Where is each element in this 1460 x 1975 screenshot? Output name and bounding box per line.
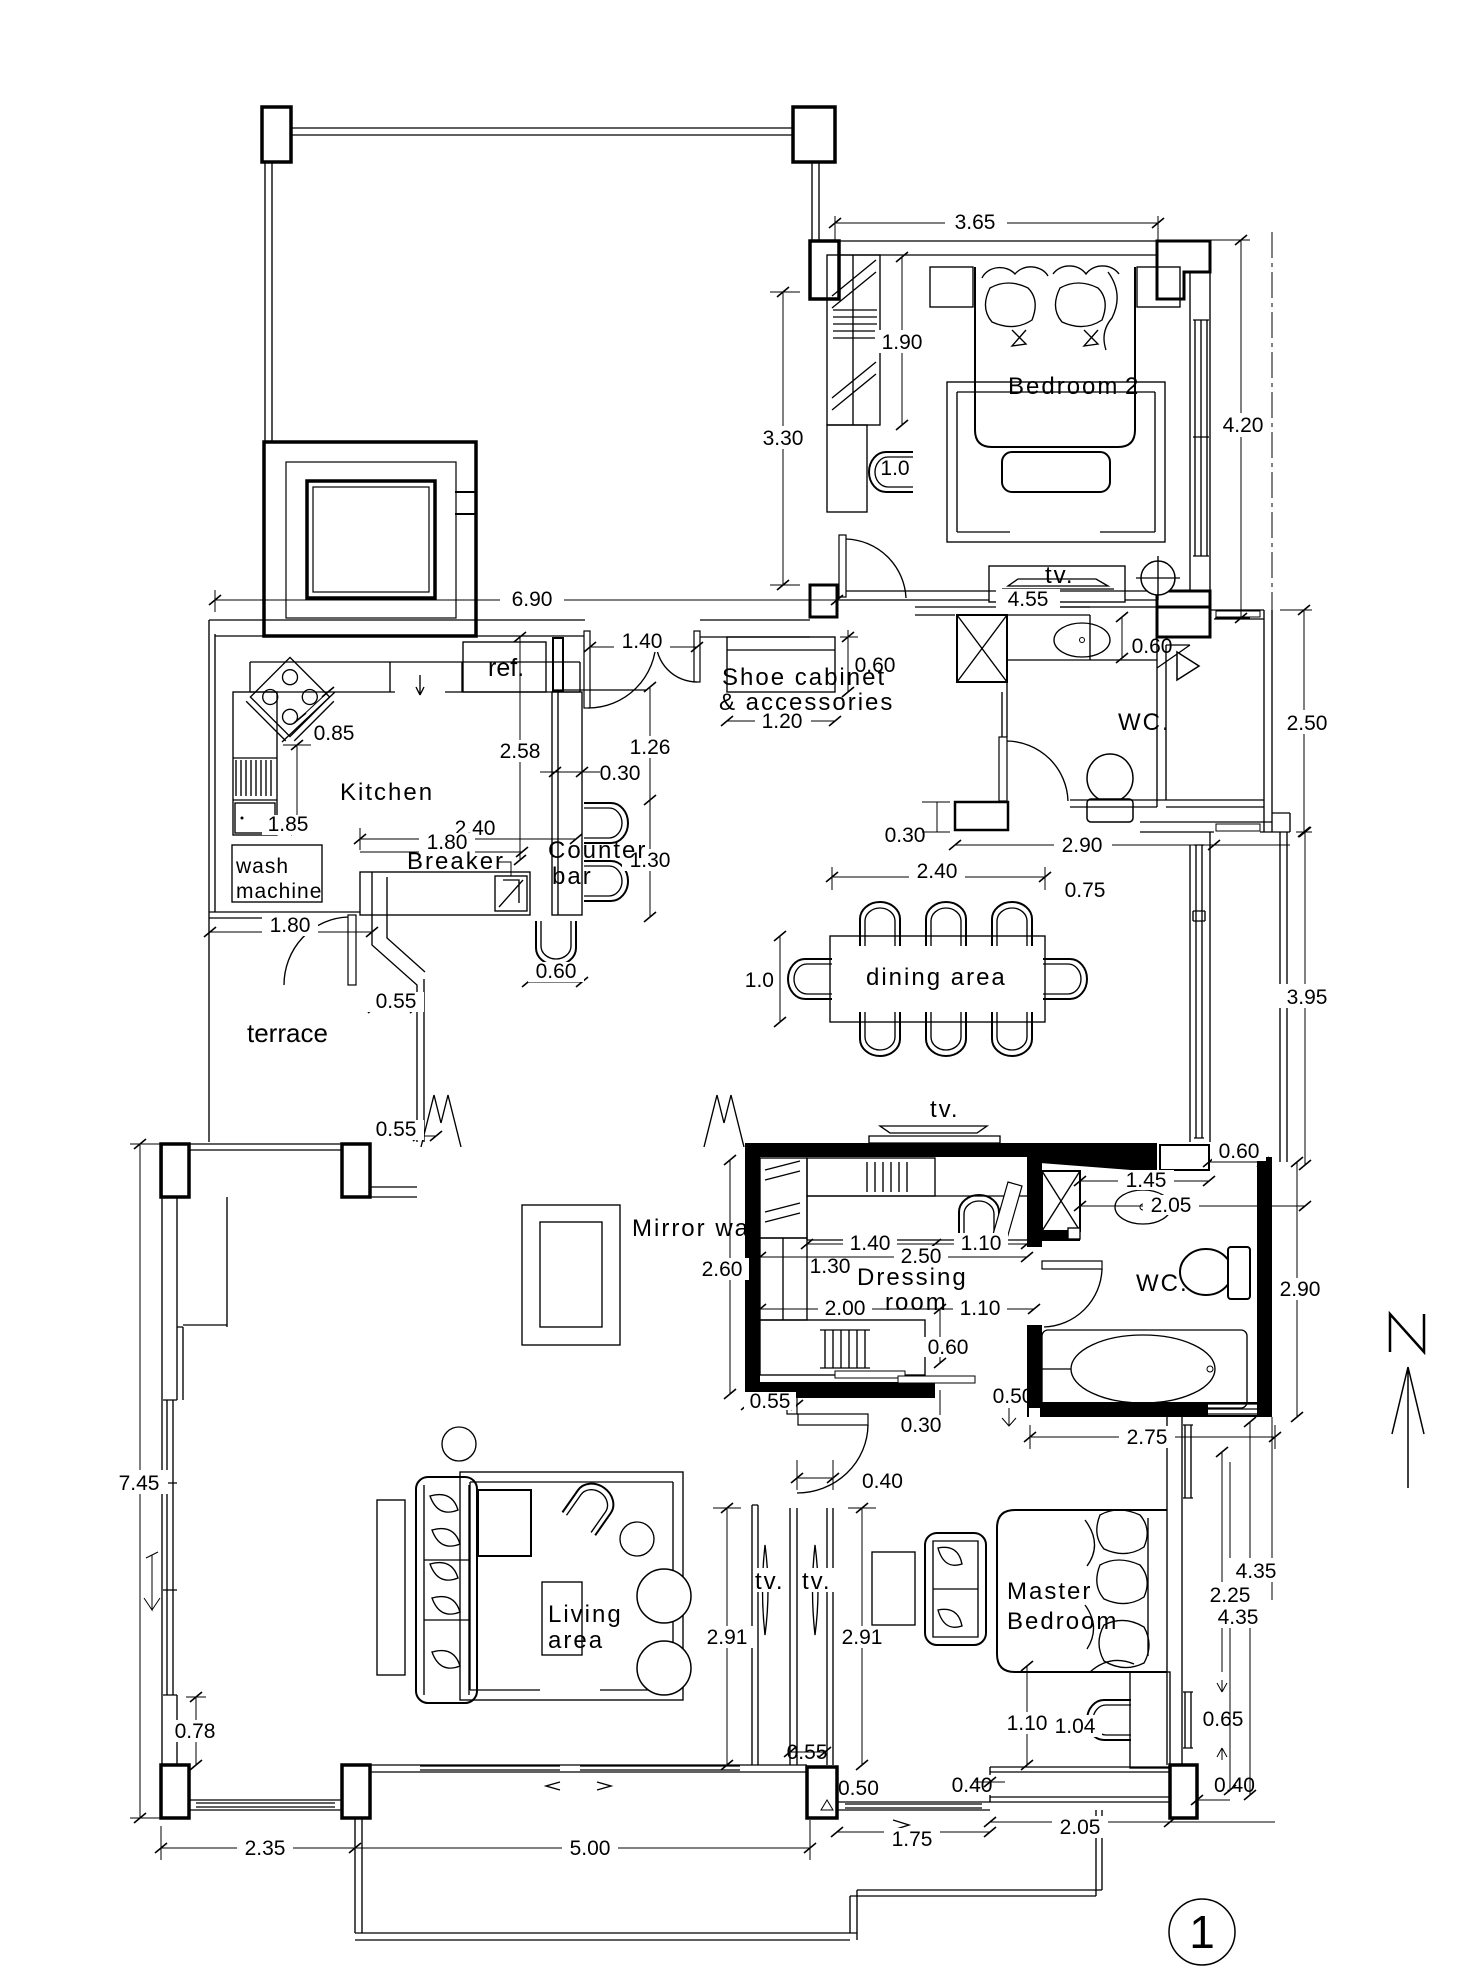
svg-text:0.55: 0.55 — [376, 990, 417, 1013]
svg-text:0.50: 0.50 — [838, 1777, 879, 1800]
svg-text:dining area: dining area — [866, 964, 1007, 991]
svg-text:1.04: 1.04 — [1055, 1715, 1096, 1738]
svg-text:1.75: 1.75 — [892, 1828, 933, 1851]
svg-text:2.91: 2.91 — [842, 1626, 883, 1649]
svg-text:0.55: 0.55 — [750, 1390, 791, 1413]
svg-text:3.65: 3.65 — [955, 211, 996, 234]
svg-text:1.0: 1.0 — [745, 969, 774, 992]
svg-text:2.40: 2.40 — [917, 860, 958, 883]
svg-text:Breaker: Breaker — [407, 848, 505, 875]
svg-text:WC.: WC. — [1136, 1270, 1189, 1297]
svg-text:Shoe cabinet: Shoe cabinet — [722, 664, 886, 691]
svg-text:1.40: 1.40 — [850, 1232, 891, 1255]
svg-text:1.90: 1.90 — [882, 331, 923, 354]
svg-text:Bedroom: Bedroom — [1007, 1608, 1118, 1635]
svg-text:2.90: 2.90 — [1062, 834, 1103, 857]
svg-text:tv.: tv. — [930, 1096, 960, 1123]
svg-text:WC.: WC. — [1118, 709, 1171, 736]
svg-text:Living: Living — [548, 1601, 623, 1628]
svg-text:0.60: 0.60 — [928, 1336, 969, 1359]
svg-text:6.90: 6.90 — [512, 588, 553, 611]
svg-text:2.50: 2.50 — [1287, 712, 1328, 735]
svg-text:0.85: 0.85 — [314, 722, 355, 745]
svg-text:5.00: 5.00 — [570, 1837, 611, 1860]
svg-text:4.20: 4.20 — [1223, 414, 1264, 437]
svg-text:1: 1 — [1189, 1906, 1215, 1958]
svg-text:2.35: 2.35 — [245, 1837, 286, 1860]
svg-text:1.26: 1.26 — [630, 736, 671, 759]
svg-text:1.10: 1.10 — [960, 1297, 1001, 1320]
svg-text:Mirror wal: Mirror wal — [632, 1215, 757, 1242]
svg-text:0.60: 0.60 — [1132, 635, 1173, 658]
svg-text:0.60: 0.60 — [536, 960, 577, 983]
svg-text:1.85: 1.85 — [268, 813, 309, 836]
svg-text:1.40: 1.40 — [622, 630, 663, 653]
svg-text:1.0: 1.0 — [880, 457, 909, 480]
svg-text:0.30: 0.30 — [600, 762, 641, 785]
svg-text:2.60: 2.60 — [702, 1258, 743, 1281]
svg-text:2.05: 2.05 — [1060, 1816, 1101, 1839]
svg-text:2.75: 2.75 — [1127, 1426, 1168, 1449]
svg-text:0.55: 0.55 — [376, 1118, 417, 1141]
svg-text:3.95: 3.95 — [1287, 986, 1328, 1009]
svg-text:terrace: terrace — [247, 1018, 328, 1048]
svg-text:4.55: 4.55 — [1008, 588, 1049, 611]
svg-text:2.58: 2.58 — [500, 740, 541, 763]
svg-text:Master: Master — [1007, 1578, 1092, 1605]
svg-text:2: 2 — [1125, 373, 1140, 400]
svg-text:bar: bar — [552, 863, 593, 890]
svg-text:1.80: 1.80 — [270, 914, 311, 937]
svg-text:0.40: 0.40 — [862, 1470, 903, 1493]
svg-text:0.30: 0.30 — [885, 824, 926, 847]
svg-text:Dressing: Dressing — [857, 1264, 968, 1291]
svg-text:& accessories: & accessories — [719, 689, 894, 716]
svg-text:0.75: 0.75 — [1065, 879, 1106, 902]
svg-text:Kitchen: Kitchen — [340, 779, 434, 806]
svg-text:0.78: 0.78 — [175, 1720, 216, 1743]
svg-text:1.10: 1.10 — [1007, 1712, 1048, 1735]
svg-text:2.05: 2.05 — [1151, 1194, 1192, 1217]
svg-text:0.30: 0.30 — [901, 1414, 942, 1437]
svg-text:tv.: tv. — [755, 1568, 785, 1595]
svg-text:Counter: Counter — [548, 837, 647, 864]
svg-text:0.60: 0.60 — [1219, 1140, 1260, 1163]
svg-text:4.35: 4.35 — [1236, 1560, 1277, 1583]
svg-text:room: room — [885, 1289, 948, 1316]
svg-text:4.35: 4.35 — [1218, 1606, 1259, 1629]
svg-text:0.50: 0.50 — [993, 1385, 1034, 1408]
svg-text:machine: machine — [236, 880, 322, 903]
svg-text:tv.: tv. — [1045, 562, 1075, 589]
svg-text:0.65: 0.65 — [1203, 1708, 1244, 1731]
svg-text:ref.: ref. — [488, 654, 524, 682]
svg-text:2.25: 2.25 — [1210, 1584, 1251, 1607]
svg-text:3.30: 3.30 — [763, 427, 804, 450]
svg-text:1.45: 1.45 — [1126, 1169, 1167, 1192]
svg-text:wash: wash — [235, 855, 289, 878]
svg-text:1.30: 1.30 — [810, 1255, 851, 1278]
svg-text:Bedroom: Bedroom — [1008, 373, 1119, 400]
svg-text:7.45: 7.45 — [119, 1472, 160, 1495]
svg-text:2.00: 2.00 — [825, 1297, 866, 1320]
svg-text:2.90: 2.90 — [1280, 1278, 1321, 1301]
svg-text:1.10: 1.10 — [961, 1232, 1002, 1255]
svg-text:2.91: 2.91 — [707, 1626, 748, 1649]
svg-text:tv.: tv. — [802, 1568, 832, 1595]
svg-text:area: area — [548, 1627, 604, 1654]
